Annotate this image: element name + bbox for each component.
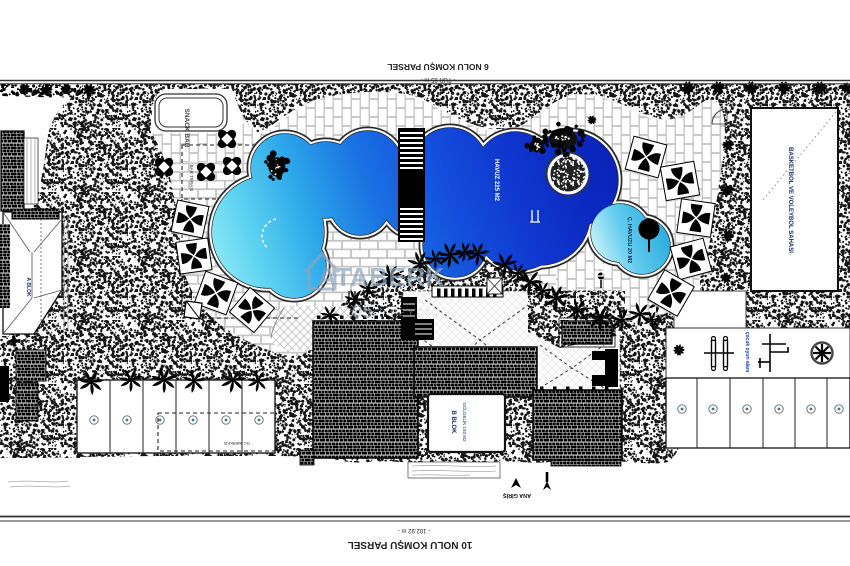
svg-text:6 NOLU KOMŞU PARSEL: 6 NOLU KOMŞU PARSEL xyxy=(387,62,488,72)
svg-text:05: 05 xyxy=(352,302,374,323)
svg-text:Ç. HAVUZU 20 M2: Ç. HAVUZU 20 M2 xyxy=(626,217,632,263)
svg-text:TİC. MERKEZİ: TİC. MERKEZİ xyxy=(224,441,250,446)
svg-text:BASKETBOL VE VOLEYBOL SAHASI: BASKETBOL VE VOLEYBOL SAHASI xyxy=(787,147,793,253)
svg-text:ATABERK: ATABERK xyxy=(318,262,445,292)
svg-text:HAVUZ 225 M2: HAVUZ 225 M2 xyxy=(493,159,499,202)
svg-text:- 102.92 m -: - 102.92 m - xyxy=(398,527,430,533)
svg-text:SNACK BAR: SNACK BAR xyxy=(183,109,190,148)
svg-text:B BLOK: B BLOK xyxy=(450,411,456,435)
svg-text:10 NOLU KOMŞU PARSEL: 10 NOLU KOMŞU PARSEL xyxy=(348,539,473,550)
svg-text:GÖLGELİK 193 M2: GÖLGELİK 193 M2 xyxy=(462,402,468,442)
svg-text:BAR TERASI: BAR TERASI xyxy=(189,165,194,192)
svg-text:ANA GİRİŞ: ANA GİRİŞ xyxy=(503,492,532,499)
svg-text:- TUR 35 m -: - TUR 35 m - xyxy=(421,76,456,82)
svg-text:PEYZAJ: PEYZAJ xyxy=(390,308,440,319)
svg-text:A BLOK: A BLOK xyxy=(25,278,31,297)
svg-text:çocuk oyun alanı: çocuk oyun alanı xyxy=(744,332,750,373)
